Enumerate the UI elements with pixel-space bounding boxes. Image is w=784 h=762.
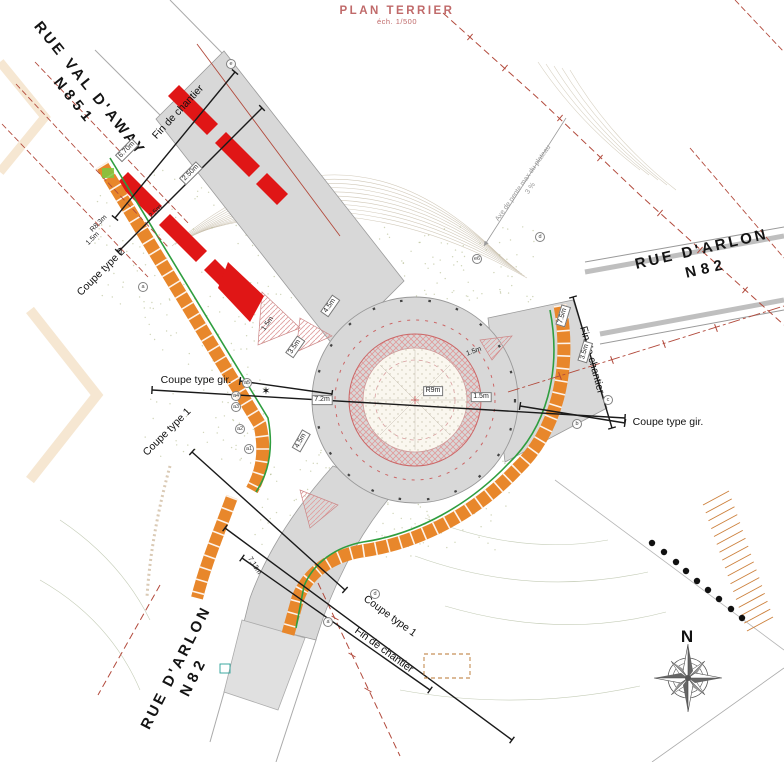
building-outline [424, 654, 470, 678]
rubble-hatch [147, 466, 170, 597]
post-dots [649, 540, 745, 621]
plan-title: PLAN TERRIER [340, 5, 455, 17]
section-star-symbol: ✶ [261, 385, 270, 398]
chevron-marks [0, 62, 97, 480]
site-plan-drawing [0, 0, 784, 762]
green-patch [102, 168, 114, 178]
embankment-hatch [703, 491, 773, 631]
plan-scale: éch. 1/500 [340, 17, 455, 26]
plan-title-block: PLAN TERRIER éch. 1/500 [340, 5, 455, 26]
site-plan: RUE VAL D'AWAYN851RUE D'ARLONN82RUE D'AR… [0, 0, 784, 762]
compass-rose [654, 644, 722, 712]
utility-box [220, 664, 230, 673]
compass-north-label: N [681, 627, 693, 647]
